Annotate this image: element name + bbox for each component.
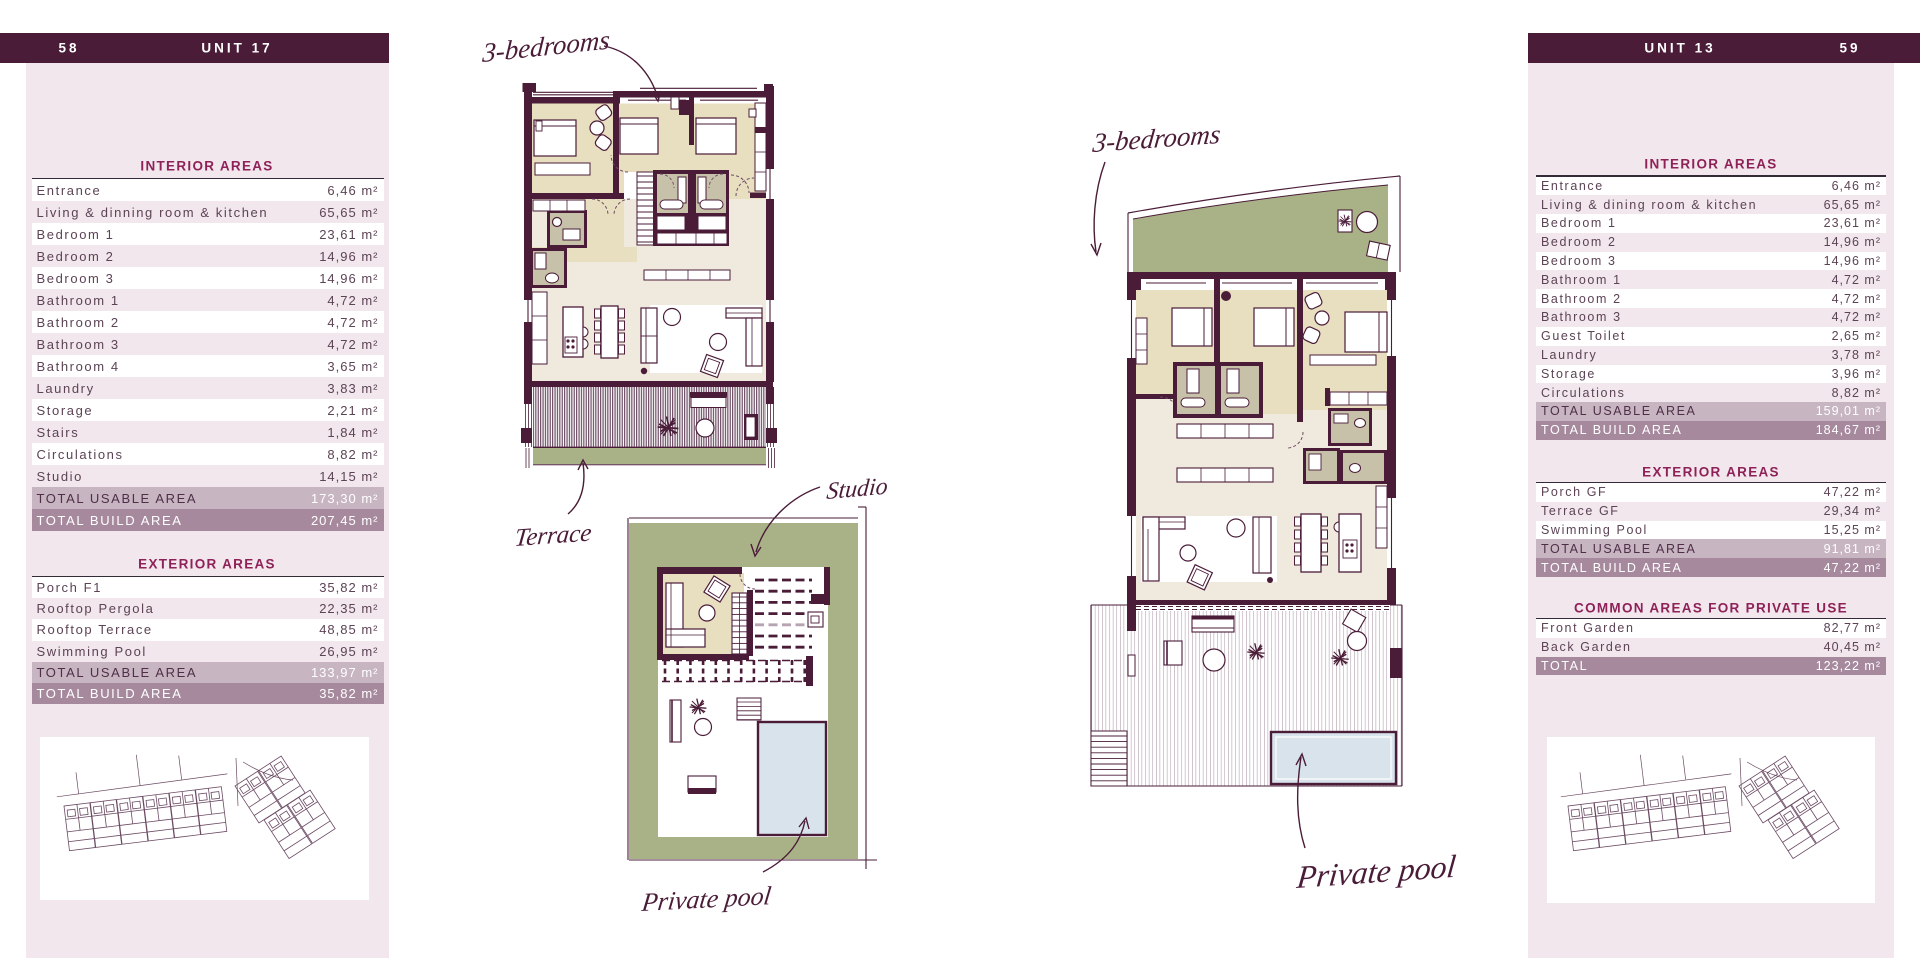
svg-text:3-bedrooms: 3-bedrooms	[1090, 119, 1222, 158]
svg-text:Private pool: Private pool	[1294, 848, 1457, 895]
svg-text:3-bedrooms: 3-bedrooms	[481, 25, 611, 69]
svg-text:Studio: Studio	[825, 473, 888, 505]
svg-text:Private pool: Private pool	[639, 881, 773, 917]
svg-text:Terrace: Terrace	[513, 520, 592, 552]
